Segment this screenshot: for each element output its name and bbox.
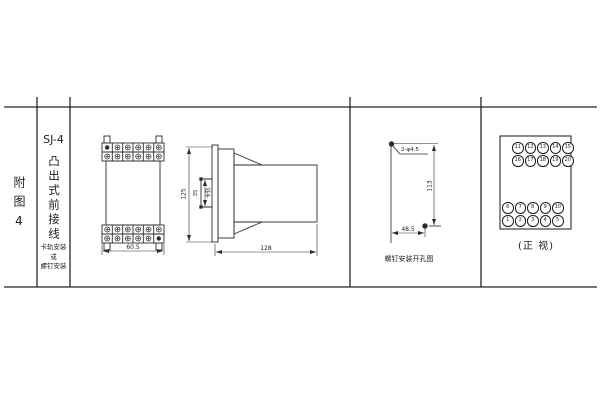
terminal-circle: 2: [515, 215, 527, 227]
terminal-circle: 3: [527, 215, 539, 227]
drill-holes-label: 2-φ4.5: [401, 147, 419, 153]
drill-diagram-caption: 螺钉安装开孔图: [385, 254, 434, 264]
appendix-figure-4-drawing: 附图4 SJ-4 凸出式前接线 卡轨安装 或 螺钉安装 60.5 125 35 …: [0, 0, 600, 400]
terminal-circle: 18: [537, 155, 549, 167]
terminal-circle: 8: [527, 202, 539, 214]
terminal-circle: 7: [515, 202, 527, 214]
terminal-row-1-5: 12345: [502, 215, 564, 227]
side-height-dimension: 125: [181, 188, 188, 199]
terminal-circle: 15: [562, 142, 574, 154]
drill-horizontal-dimension: 48.5: [401, 226, 414, 233]
terminal-panel-caption: (正 视): [518, 237, 554, 252]
terminal-row-11-15: 1112131415: [512, 142, 574, 154]
side-depth-dimension: 128: [260, 245, 271, 252]
terminal-circle: 14: [550, 142, 562, 154]
terminal-row-6-10: 678910: [502, 202, 564, 214]
terminal-circle: 16: [512, 155, 524, 167]
terminal-circle: 20: [562, 155, 574, 167]
terminal-circle: 5: [552, 215, 564, 227]
terminal-circle: 17: [525, 155, 537, 167]
terminal-circle: 6: [502, 202, 514, 214]
drawing-linework: [0, 0, 600, 400]
drill-vertical-dimension: 113: [427, 180, 434, 191]
terminal-circle: 9: [540, 202, 552, 214]
terminal-circle: 1: [502, 215, 514, 227]
terminal-circle: 11: [512, 142, 524, 154]
terminal-circle: 12: [525, 142, 537, 154]
terminal-row-16-20: 1617181920: [512, 155, 574, 167]
terminal-circle: 13: [537, 142, 549, 154]
mount-option-screw: 螺钉安装: [37, 260, 70, 270]
terminal-circle: 10: [552, 202, 564, 214]
terminal-circle: 4: [540, 215, 552, 227]
figure-number-label: 附图4: [11, 176, 28, 235]
mount-option-rail: 卡轨安装: [37, 241, 70, 251]
terminal-circle: 19: [550, 155, 562, 167]
wiring-type-label: 凸出式前接线: [46, 155, 62, 242]
slot-dimension: 35: [193, 190, 199, 197]
model-label: SJ-4: [37, 133, 70, 146]
rail-slot-label: 卡轨: [204, 187, 212, 198]
front-width-dimension: 60.5: [126, 244, 139, 251]
